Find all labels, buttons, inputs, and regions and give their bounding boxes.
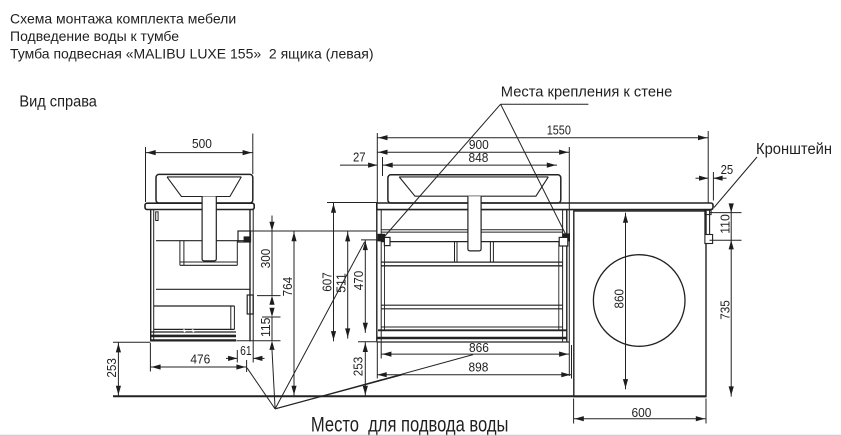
svg-text:Схема монтажа комплекта мебели: Схема монтажа комплекта мебели [10,11,236,27]
svg-text:764: 764 [281,277,295,297]
svg-text:900: 900 [469,138,489,152]
svg-text:61: 61 [240,344,252,358]
svg-text:848: 848 [469,151,489,165]
svg-text:Подведение воды к тумбе: Подведение воды к тумбе [10,28,179,44]
svg-text:735: 735 [719,300,733,320]
svg-text:Тумба подвесная «MALIBU LUXE 1: Тумба подвесная «MALIBU LUXE 155» 2 ящик… [10,45,374,61]
svg-text:898: 898 [469,360,489,374]
svg-text:476: 476 [190,353,210,367]
svg-text:253: 253 [105,358,119,378]
svg-text:Кронштейн: Кронштейн [756,141,832,158]
svg-text:253: 253 [352,357,366,377]
svg-text:27: 27 [353,151,366,165]
svg-text:607: 607 [320,272,334,292]
svg-text:115: 115 [259,318,273,338]
svg-text:600: 600 [632,406,652,420]
svg-text:Место для подвода воды: Место для подвода воды [311,413,509,436]
svg-text:300: 300 [259,249,273,269]
svg-text:110: 110 [719,214,733,234]
svg-text:866: 866 [469,341,489,355]
svg-text:Вид справа: Вид справа [19,94,97,111]
svg-text:470: 470 [352,271,366,291]
svg-text:860: 860 [612,289,626,309]
svg-text:1550: 1550 [547,124,571,138]
svg-text:500: 500 [192,137,212,151]
svg-text:25: 25 [721,163,734,177]
svg-text:Места крепления к стене: Места крепления к стене [501,84,673,101]
